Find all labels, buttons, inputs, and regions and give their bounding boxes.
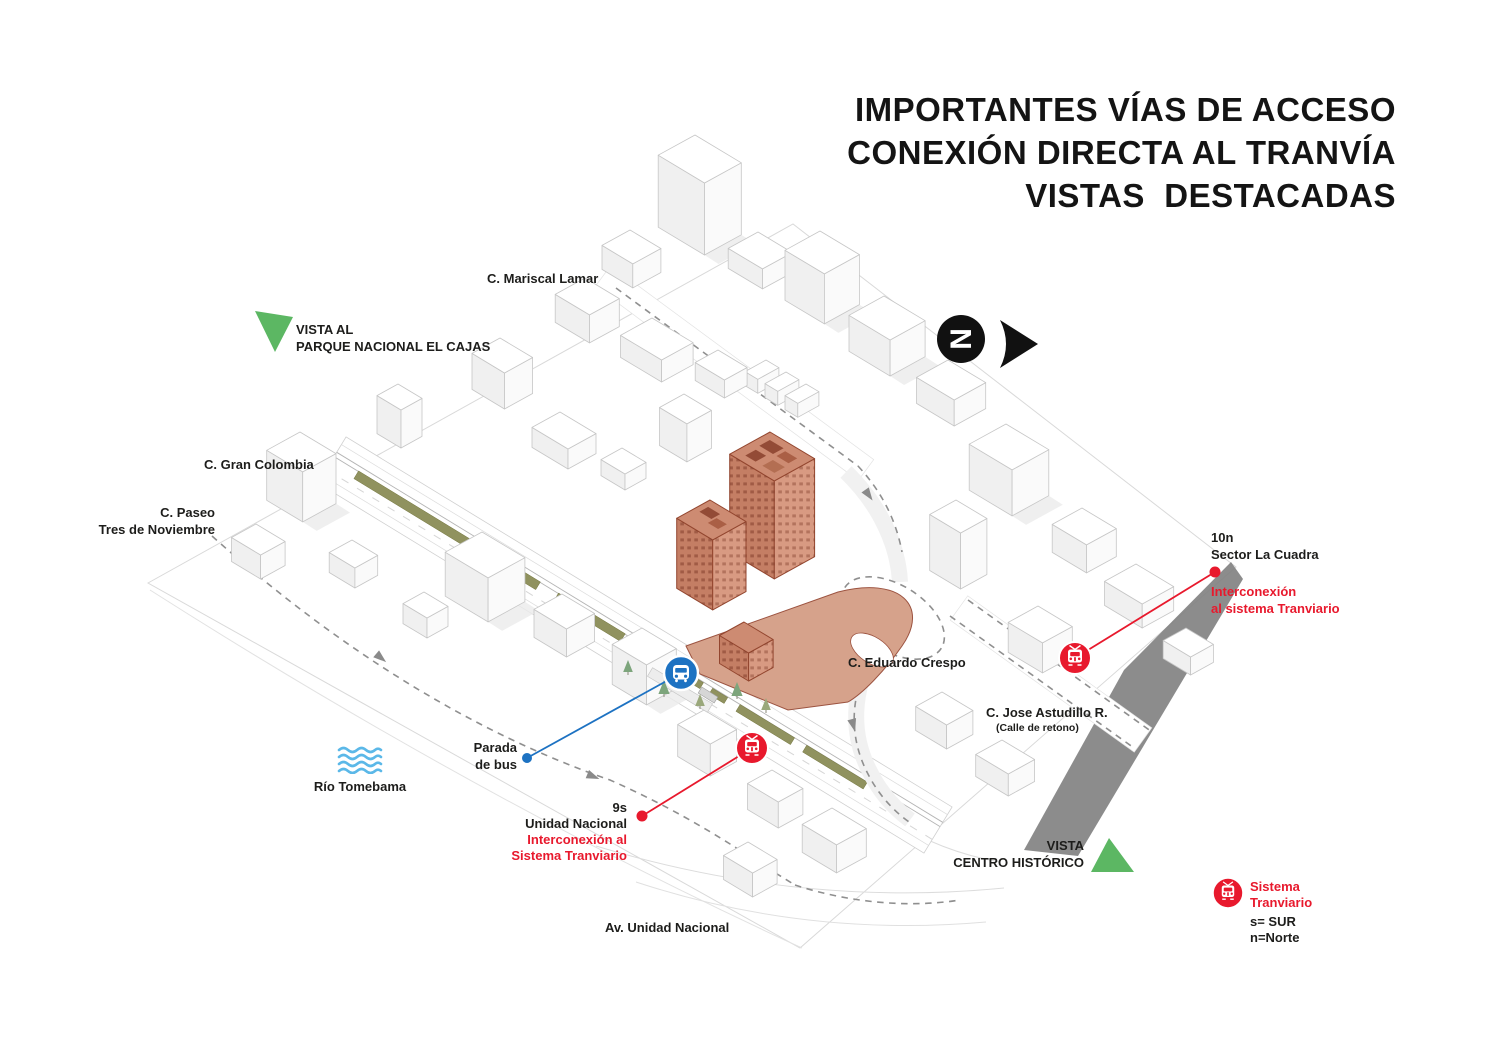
- tram-stop-unidad-nacional-label: 9s Unidad Nacional Interconexión al Sist…: [511, 800, 627, 864]
- map-building: [658, 135, 741, 255]
- route-dashes: [212, 288, 1152, 904]
- tram-stop-la-cuadra-label: 10n Sector La Cuadra Interconexión al si…: [1211, 529, 1340, 617]
- river-label-block: Río Tomebama: [300, 746, 420, 795]
- view-centro-historico-label: VISTA CENTRO HISTÓRICO: [953, 837, 1084, 871]
- tram-station-icon-10n: [1059, 642, 1091, 674]
- bus-stop-icon: [664, 656, 698, 690]
- map-building: [601, 448, 646, 490]
- map-building: [532, 412, 596, 469]
- tram-station-icon-9s: [736, 732, 768, 764]
- page: IMPORTANTES VÍAS DE ACCESO CONEXIÓN DIRE…: [0, 0, 1500, 1061]
- river-label: Río Tomebama: [300, 778, 420, 795]
- bus-stop-label: Parada de bus: [474, 739, 517, 773]
- map-building: [660, 394, 712, 462]
- map-building: [329, 540, 378, 588]
- tram-9s-leader-dot: [637, 811, 648, 822]
- map-building: [748, 770, 803, 828]
- street-label-paseo: C. Paseo Tres de Noviembre: [99, 504, 215, 538]
- map-building: [403, 592, 448, 638]
- map-building: [1052, 508, 1116, 573]
- page-title: IMPORTANTES VÍAS DE ACCESO CONEXIÓN DIRE…: [847, 88, 1396, 217]
- view-cone-cajas-icon: [252, 308, 296, 354]
- map-building: [724, 842, 778, 897]
- street-label-av-unidad-nacional: Av. Unidad Nacional: [605, 919, 729, 936]
- bus-stop-leader-dot: [522, 753, 532, 763]
- map-building: [267, 432, 336, 522]
- map-building: [969, 424, 1049, 516]
- water-waves-icon: [337, 746, 383, 774]
- north-letter: N: [943, 328, 976, 350]
- map-building: [377, 384, 422, 448]
- north-indicator: N: [934, 308, 1046, 370]
- legend-text: Sistema Tranviario s= SUR n=Norte: [1250, 879, 1312, 946]
- title-line-3: VISTAS DESTACADAS: [847, 174, 1396, 217]
- street-label-jose-astudillo: C. Jose Astudillo R.: [986, 704, 1108, 721]
- street-label-jose-astudillo-note: (Calle de retono): [996, 722, 1079, 735]
- map-building: [802, 808, 866, 873]
- map-building: [916, 692, 973, 749]
- title-line-2: CONEXIÓN DIRECTA AL TRANVÍA: [847, 131, 1396, 174]
- street-label-gran-colombia: C. Gran Colombia: [204, 456, 314, 473]
- street-label-eduardo-crespo: C. Eduardo Crespo: [848, 654, 966, 671]
- map-building: [785, 231, 859, 324]
- legend-tram-icon: [1212, 877, 1244, 909]
- building-shadows: [303, 235, 1063, 714]
- title-line-1: IMPORTANTES VÍAS DE ACCESO: [847, 88, 1396, 131]
- map-building: [930, 500, 987, 589]
- north-arrow-icon: [1000, 320, 1038, 368]
- map-building: [976, 740, 1035, 796]
- view-cone-centro-icon: [1090, 836, 1136, 874]
- street-label-mariscal-lamar: C. Mariscal Lamar: [487, 270, 598, 287]
- view-cajas-label: VISTA AL PARQUE NACIONAL EL CAJAS: [296, 321, 490, 355]
